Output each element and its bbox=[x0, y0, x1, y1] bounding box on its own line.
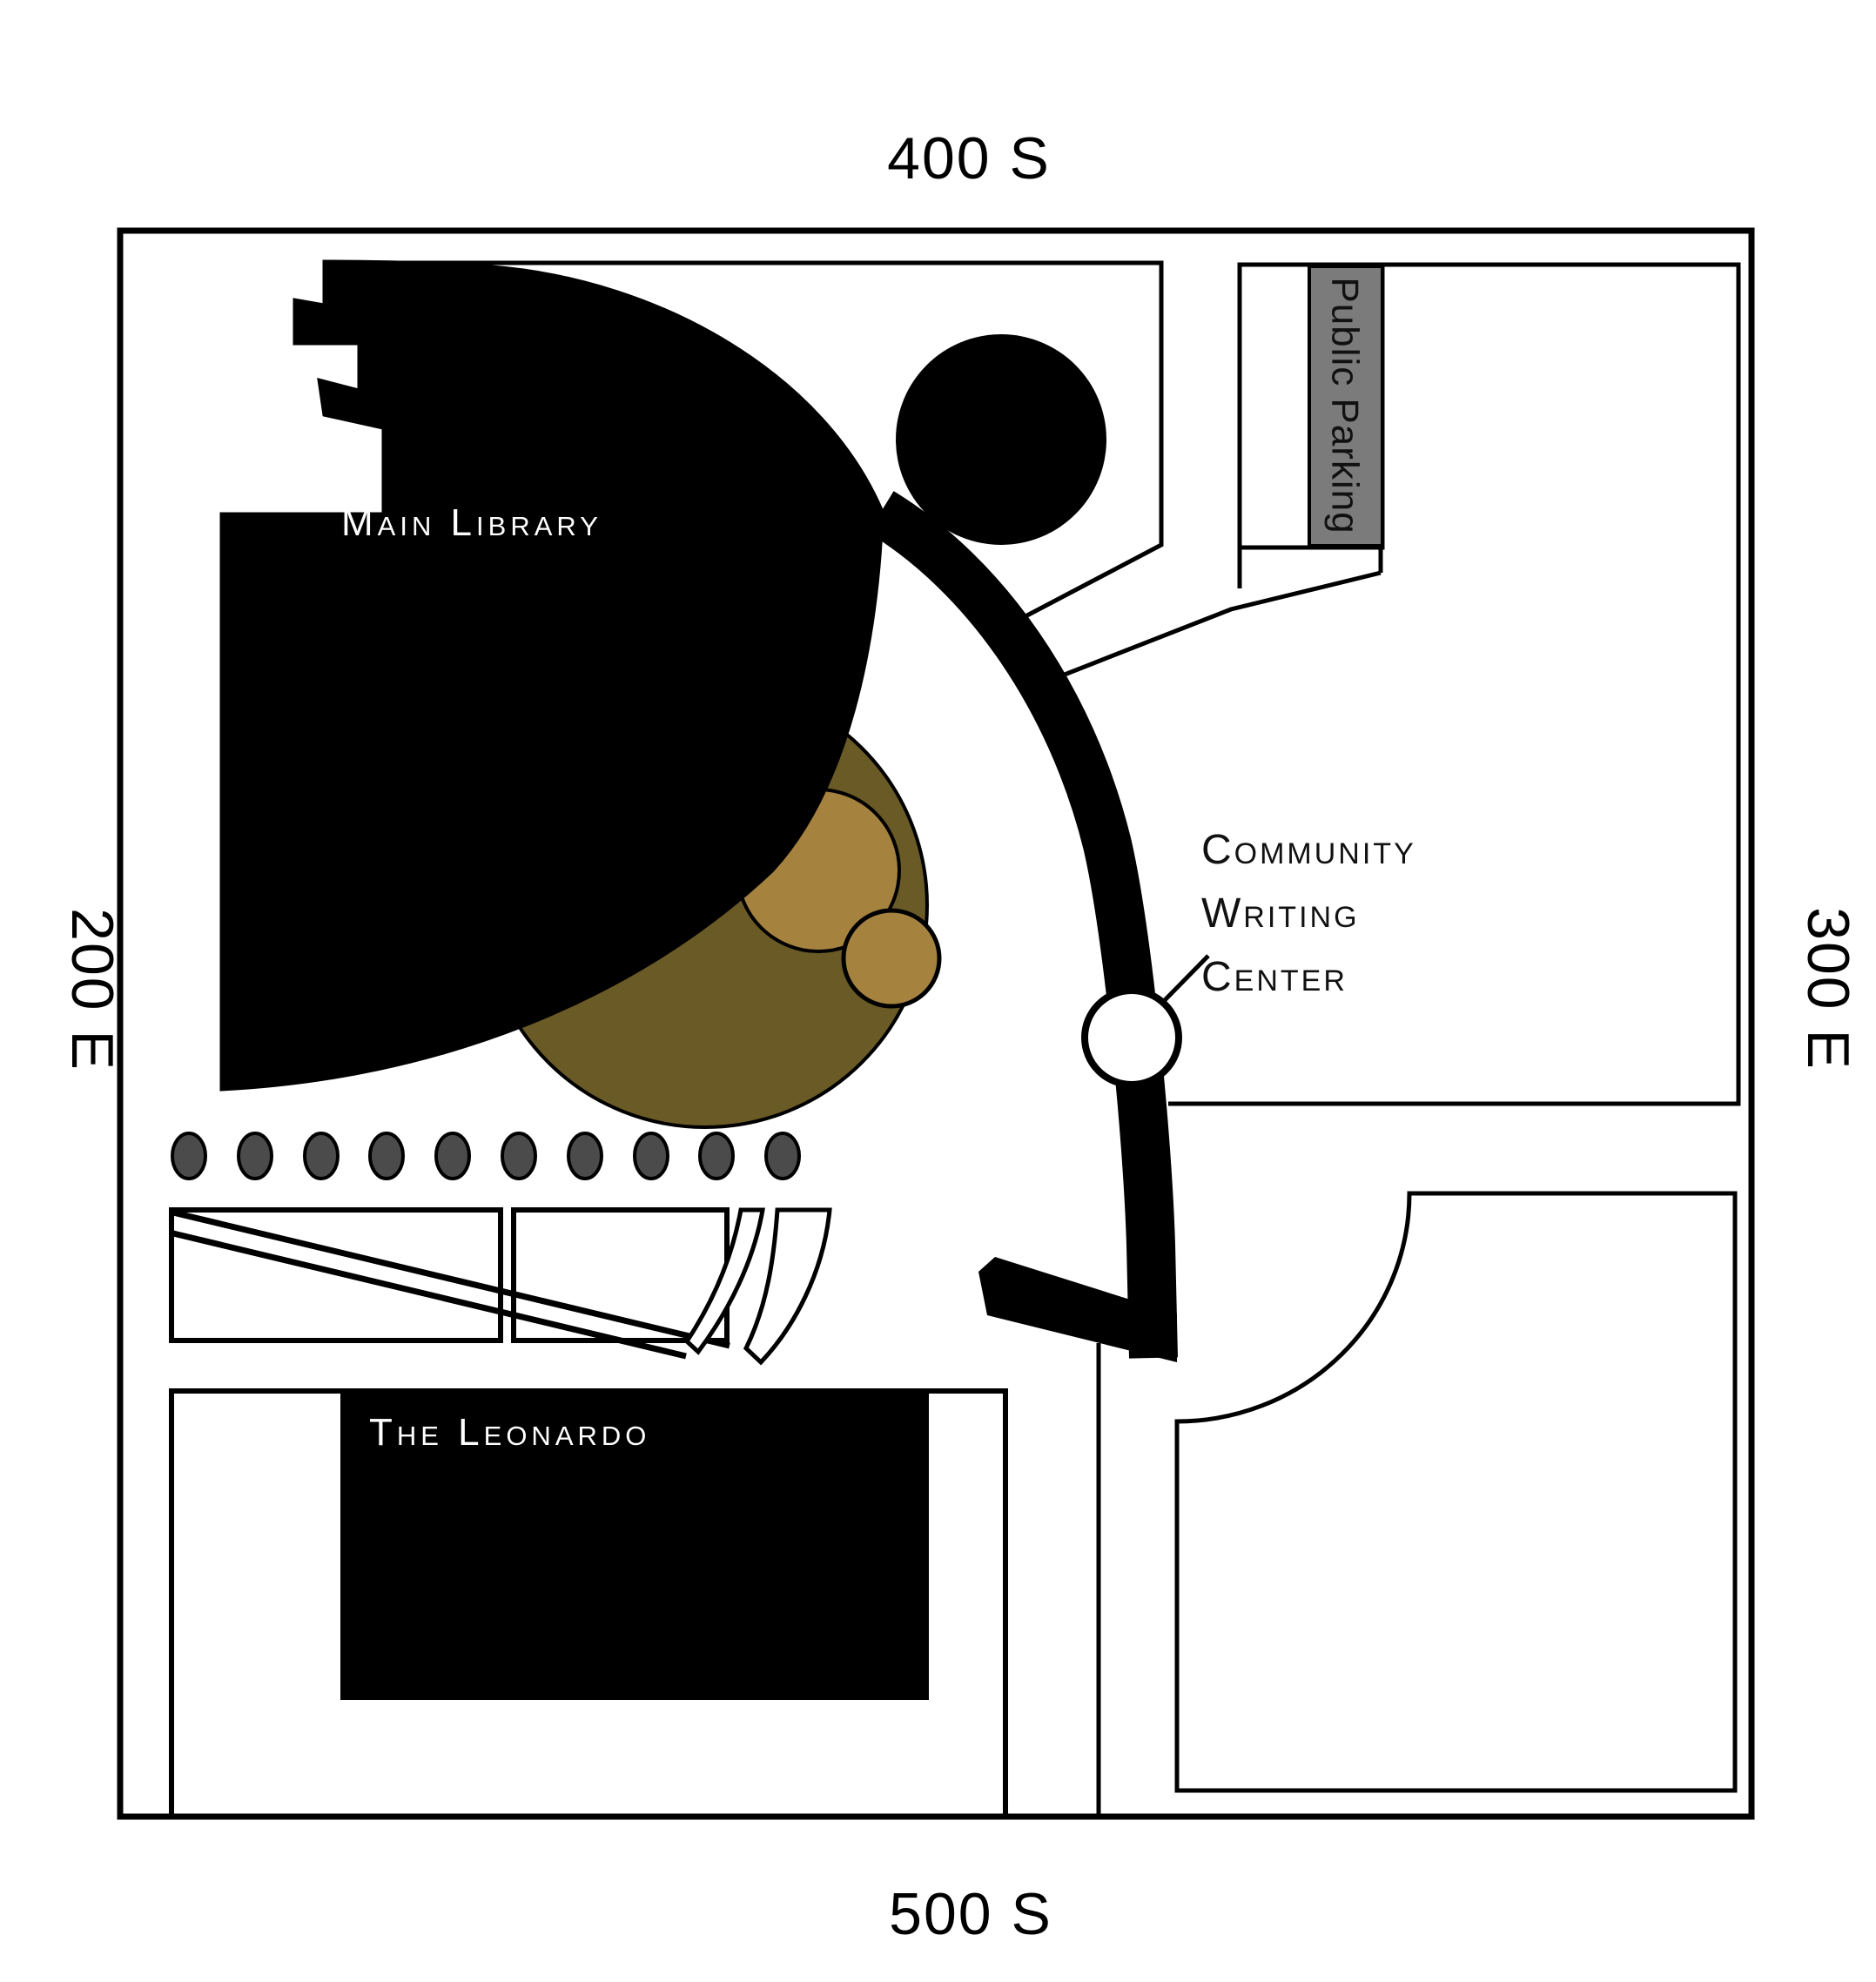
cwc-label-line1: Community bbox=[1201, 827, 1416, 873]
street-label-right: 300 E bbox=[1795, 907, 1861, 1071]
street-label-bottom: 500 S bbox=[889, 1881, 1052, 1947]
block-map: Public Parking Main Lib bbox=[0, 0, 1876, 1982]
bollard-dot bbox=[700, 1133, 733, 1179]
bollard-dot bbox=[635, 1133, 668, 1179]
plaza-circle-small bbox=[844, 910, 939, 1006]
main-library-label: Main Library bbox=[341, 501, 602, 544]
bollard-dot bbox=[766, 1133, 799, 1179]
street-label-left: 200 E bbox=[59, 908, 125, 1072]
cwc-label-line2: Writing bbox=[1201, 890, 1360, 937]
bollard-dot bbox=[502, 1133, 535, 1179]
leonardo-label: The Leonardo bbox=[369, 1411, 650, 1454]
bollard-dot bbox=[436, 1133, 469, 1179]
street-label-top: 400 S bbox=[887, 125, 1051, 191]
cwc-label-line3: Center bbox=[1201, 954, 1348, 1000]
map-page: Public Parking Main Lib bbox=[0, 0, 1876, 1982]
cwc-marker bbox=[1085, 991, 1179, 1085]
bollard-dot bbox=[172, 1133, 205, 1179]
bollard-dot bbox=[370, 1133, 403, 1179]
library-round-pavilion bbox=[896, 334, 1106, 545]
public-parking-label: Public Parking bbox=[1324, 277, 1367, 534]
bollard-dot bbox=[568, 1133, 602, 1179]
bollard-dot bbox=[305, 1133, 338, 1179]
bollard-dot bbox=[239, 1133, 272, 1179]
